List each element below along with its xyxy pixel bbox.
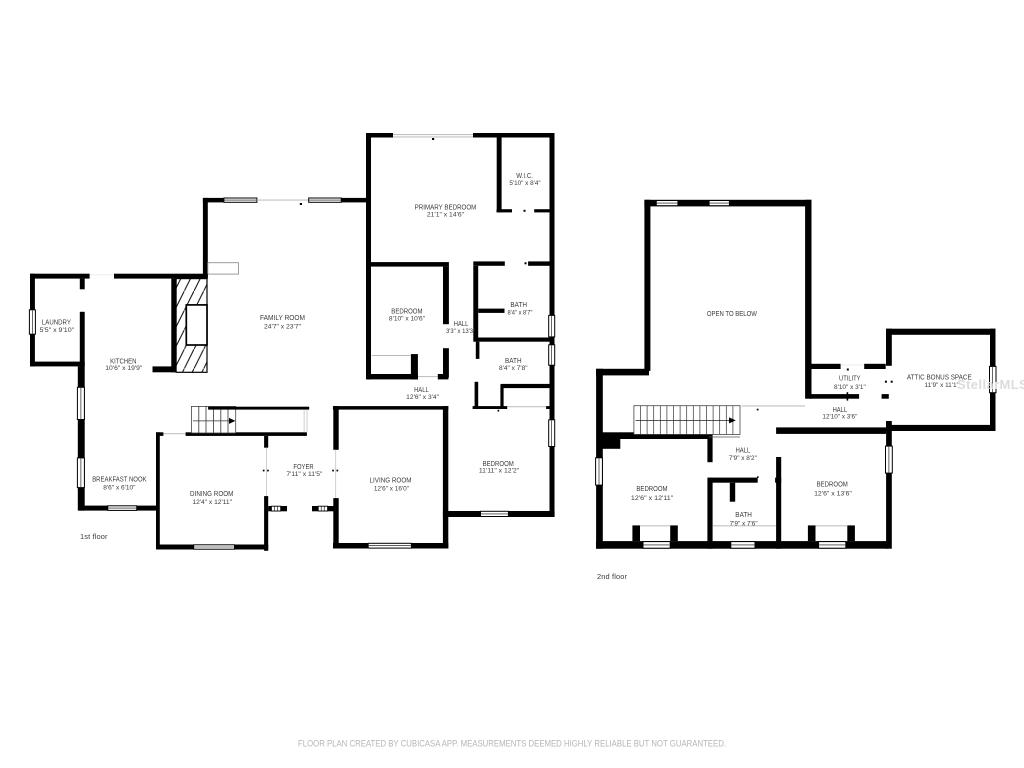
- svg-text:7'9" x 7'6": 7'9" x 7'6": [730, 521, 758, 528]
- svg-text:10'6" x 19'9": 10'6" x 19'9": [105, 365, 142, 372]
- svg-text:StellarMLS: StellarMLS: [957, 377, 1024, 392]
- svg-text:12'4" x 12'11": 12'4" x 12'11": [192, 499, 232, 506]
- svg-text:LAUNDRY: LAUNDRY: [42, 318, 71, 326]
- svg-text:LIVING ROOM: LIVING ROOM: [370, 477, 412, 485]
- svg-text:8'4" x 7'8": 8'4" x 7'8": [499, 365, 528, 372]
- svg-text:DINING ROOM: DINING ROOM: [190, 490, 233, 498]
- svg-text:21'1" x 14'6": 21'1" x 14'6": [427, 211, 464, 218]
- svg-text:PRIMARY BEDROOM: PRIMARY BEDROOM: [415, 204, 477, 212]
- svg-text:12'6" x 12'11": 12'6" x 12'11": [631, 495, 673, 502]
- svg-text:5'5" x 9'10": 5'5" x 9'10": [40, 327, 75, 334]
- svg-text:BEDROOM: BEDROOM: [391, 308, 422, 316]
- svg-text:8'4" x 8'7": 8'4" x 8'7": [508, 309, 533, 316]
- svg-text:FLOOR PLAN CREATED BY CUBICASA: FLOOR PLAN CREATED BY CUBICASA APP. MEAS…: [298, 739, 726, 749]
- svg-text:1st floor: 1st floor: [80, 532, 108, 541]
- svg-text:FOYER: FOYER: [293, 463, 313, 471]
- svg-text:11'11" x 12'2": 11'11" x 12'2": [479, 468, 519, 475]
- svg-text:12'6" x 13'6": 12'6" x 13'6": [814, 491, 852, 498]
- svg-text:BATH: BATH: [735, 511, 752, 519]
- svg-text:7'11" x 11'5": 7'11" x 11'5": [286, 471, 322, 478]
- svg-text:8'10" x 3'1": 8'10" x 3'1": [834, 384, 866, 391]
- svg-text:12'6" x 16'0": 12'6" x 16'0": [374, 485, 409, 492]
- svg-text:FAMILY ROOM: FAMILY ROOM: [260, 314, 305, 322]
- svg-text:24'7" x 23'7": 24'7" x 23'7": [264, 324, 301, 331]
- svg-text:12'6" x 3'4": 12'6" x 3'4": [406, 394, 439, 401]
- svg-text:2nd floor: 2nd floor: [597, 572, 628, 581]
- svg-text:HALL: HALL: [736, 447, 751, 455]
- svg-text:8'6" x 6'10": 8'6" x 6'10": [103, 484, 135, 491]
- svg-text:3'3" x 13'3": 3'3" x 13'3": [446, 328, 475, 335]
- svg-text:BEDROOM: BEDROOM: [636, 485, 667, 493]
- svg-text:8'10" x 10'6": 8'10" x 10'6": [389, 315, 425, 322]
- svg-text:BEDROOM: BEDROOM: [817, 481, 848, 489]
- svg-text:BREAKFAST NOOK: BREAKFAST NOOK: [92, 475, 147, 483]
- svg-text:BEDROOM: BEDROOM: [483, 460, 514, 468]
- svg-text:UTILITY: UTILITY: [839, 374, 861, 382]
- svg-text:OPEN TO BELOW: OPEN TO BELOW: [707, 310, 757, 318]
- svg-text:BATH: BATH: [510, 301, 527, 309]
- svg-text:12'10" x 3'6": 12'10" x 3'6": [822, 414, 857, 421]
- svg-text:HALL: HALL: [414, 386, 429, 394]
- svg-text:HALL: HALL: [833, 406, 848, 414]
- svg-text:5'10" x 8'4": 5'10" x 8'4": [509, 180, 540, 187]
- svg-text:7'9" x 8'2": 7'9" x 8'2": [729, 455, 757, 462]
- svg-text:11'9" x 11'1": 11'9" x 11'1": [925, 382, 959, 389]
- svg-text:BATH: BATH: [505, 357, 522, 365]
